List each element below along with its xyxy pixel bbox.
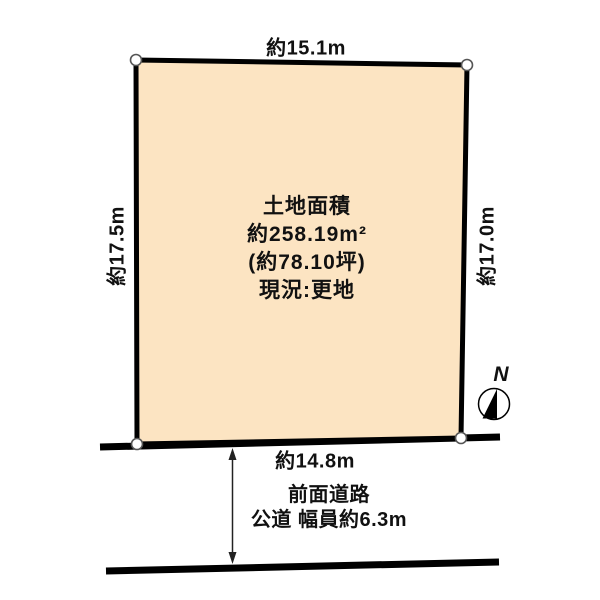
corner-marker-bottom-right: [456, 433, 467, 444]
site-plan-diagram: 約15.1m 約17.5m 約17.0m 約14.8m 土地面積 約258.19…: [0, 0, 600, 600]
dimension-left-label: 約17.5m: [101, 206, 130, 286]
road-width-arrow-head-up: [229, 448, 237, 460]
compass-north-label: N: [493, 363, 508, 387]
corner-marker-top-left: [131, 55, 142, 66]
dimension-right-label: 約17.0m: [471, 206, 500, 286]
land-area-tsubo: (約78.10坪): [247, 249, 367, 277]
corner-marker-top-right: [462, 60, 473, 71]
land-info-block: 土地面積 約258.19m² (約78.10坪) 現況:更地: [247, 193, 367, 305]
land-area-title: 土地面積: [247, 193, 367, 221]
corner-marker-bottom-left: [132, 439, 143, 450]
dimension-bottom-label: 約14.8m: [275, 445, 355, 474]
land-area-sqm: 約258.19m²: [247, 221, 367, 249]
road-detail-label: 公道 幅員約6.3m: [251, 508, 407, 533]
road-width-arrow-head-down: [229, 552, 237, 564]
road-far-edge-line: [106, 562, 499, 571]
land-status: 現況:更地: [247, 277, 367, 305]
road-name-label: 前面道路: [251, 483, 407, 508]
dimension-top-label: 約15.1m: [266, 32, 346, 61]
road-info-block: 前面道路 公道 幅員約6.3m: [251, 483, 407, 533]
